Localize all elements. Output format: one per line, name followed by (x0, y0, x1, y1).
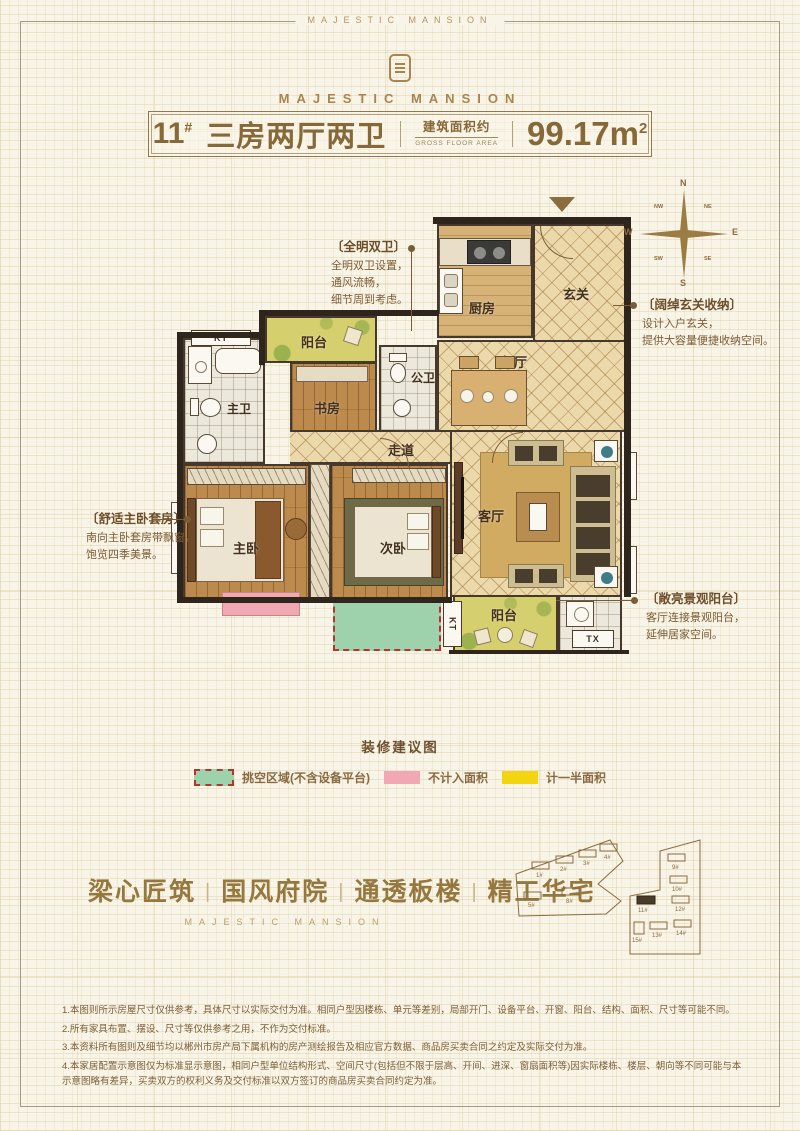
area-label-en: GROSS FLOOR AREA (415, 140, 498, 147)
washbasin-icon (197, 434, 217, 454)
compass-n: N (680, 178, 687, 188)
washing-machine-icon (566, 601, 594, 627)
sofa-main (570, 466, 616, 582)
site-label: 2# (560, 867, 567, 873)
annotation-view-balcony: 〔敞亮景观阳台〕 客厅连接景观阳台， 延伸居家空间。 (646, 588, 746, 644)
excluded-swatch (384, 771, 420, 784)
site-label: 9# (672, 865, 679, 871)
room-balcony-bottom-label: 阳台 (491, 605, 517, 624)
annotation-foyer-storage: 〔阔绰玄关收纳〕 设计入户玄关， 提供大容量便捷收纳空间。 (642, 294, 774, 350)
annotation-master-suite: 〔舒适主卧套房〕 南向主卧套房带飘窗， 饱览四季美景。 (86, 508, 196, 564)
slogan-item: 国风府院 (221, 878, 329, 906)
sink-basin-icon (444, 274, 458, 288)
balcony-table-icon (497, 627, 513, 643)
unit-number-sup: # (184, 119, 192, 135)
annotation-line: 全明双卫设置， (331, 258, 408, 275)
plant-icon (601, 446, 613, 458)
room-second-bedroom-label: 次卧 (380, 538, 406, 557)
room-living-label: 客厅 (478, 506, 504, 525)
leader-dot (184, 516, 191, 523)
unit-number: 11# (153, 117, 193, 151)
cushion-icon (576, 527, 610, 549)
sofa-bench (508, 564, 564, 588)
annotation-title: 〔敞亮景观阳台〕 (646, 588, 746, 607)
room-public-bath-label: 公卫 (411, 369, 435, 386)
void-swatch (194, 769, 234, 786)
wall-right (624, 217, 631, 597)
closet-strip (310, 464, 330, 600)
burner-icon (474, 247, 486, 259)
pillow-icon (200, 529, 224, 547)
leader-line (411, 251, 412, 331)
cushion-icon (539, 446, 557, 461)
room-master-bedroom: 主卧 (183, 464, 310, 600)
slogan-item: 梁心匠筑 (88, 878, 196, 906)
wall-top (433, 217, 629, 224)
slogan-divider: | (196, 881, 221, 903)
side-table (594, 440, 618, 462)
disclaimer-line: 1.本图则所示房屋尺寸仅供参考，具体尺寸以实际交付为准。相同户型因楼栋、单元等差… (62, 1004, 750, 1019)
tv-screen-icon (461, 477, 464, 539)
site-plan: 1# 2# 3# 4# 5# 8# 9# 10# 11# 12# 13# 14#… (510, 834, 710, 964)
plate-icon (504, 389, 518, 403)
title-divider (400, 121, 401, 147)
room-master-bedroom-label: 主卧 (233, 538, 259, 557)
leader-dot (631, 597, 638, 604)
side-table (594, 566, 618, 588)
room-living: 客厅 (450, 430, 622, 597)
site-label: 11# (638, 908, 648, 914)
legend-label: 不计入面积 (428, 769, 488, 786)
layout-name: 三房两厅两卫 (206, 113, 386, 155)
plant-icon (601, 572, 613, 584)
bed-headboard (432, 506, 441, 578)
site-label: 13# (652, 933, 663, 939)
bathtub-icon (215, 348, 261, 374)
room-foyer-label: 玄关 (563, 284, 589, 303)
annotation-line: 延伸居家空间。 (646, 627, 746, 644)
excluded-area-pink (222, 592, 300, 616)
plate-icon (482, 391, 494, 403)
tray-icon (529, 503, 547, 531)
slogan-divider: | (462, 881, 487, 903)
site-label: 3# (583, 861, 590, 867)
cushion-icon (539, 569, 557, 583)
tx-tag-label: TX (586, 634, 600, 644)
half-area-swatch (502, 771, 538, 784)
disclaimer-line: 4.本家居配置示意图仅为标准显示意图，相同户型单位结构形式、空间尺寸(包括但不限… (62, 1060, 750, 1089)
slogan: 梁心匠筑|国风府院|通透板楼|精工华宅 MAJESTIC MANSION (88, 872, 482, 927)
slogan-main: 梁心匠筑|国风府院|通透板楼|精工华宅 (88, 872, 482, 908)
annotation-double-bath: 〔全明双卫〕 全明双卫设置， 通风流畅， 细节周到考虑。 (331, 236, 408, 309)
cushion-icon (515, 569, 533, 583)
burner-icon (493, 247, 505, 259)
annotation-line: 饱览四季美景。 (86, 547, 196, 564)
compass-w: W (624, 227, 633, 237)
wardrobe (352, 468, 446, 483)
room-second-bedroom: 次卧 (330, 464, 448, 600)
leader-dot (630, 302, 637, 309)
kitchen-sink (439, 268, 463, 314)
annotation-line: 提供大容量便捷收纳空间。 (642, 333, 774, 350)
leader-line (556, 600, 634, 601)
disclaimer-line: 2.所有家具布置、摆设、尺寸等仅供参考之用，不作为交付标准。 (62, 1023, 750, 1038)
washbasin-icon (393, 399, 411, 417)
seal-icon (389, 54, 411, 82)
washing-machine-icon (188, 346, 212, 384)
toilet-icon (390, 363, 406, 383)
cushion-icon (576, 501, 610, 523)
wall-top-left (259, 310, 439, 316)
site-label: 10# (672, 887, 683, 893)
room-balcony-bottom: 阳台 (453, 595, 558, 653)
compass-se: SE (704, 256, 711, 262)
balcony-chair-icon (343, 326, 363, 346)
room-kitchen: 厨房 (437, 224, 533, 338)
site-label: 14# (676, 931, 687, 937)
legend-item-excluded: 不计入面积 (384, 769, 488, 786)
disclaimer-line: 3.本资料所有图则及细节均以郴州市房产局下属机构的房产测绘报告及相应官方数据、商… (62, 1041, 750, 1056)
site-label: 1# (536, 873, 543, 879)
toilet-icon (200, 398, 221, 417)
room-public-bath: 公卫 (379, 345, 437, 432)
legend-title: 装修建议图 (0, 736, 800, 756)
entry-arrow-icon (549, 197, 575, 212)
room-master-bath: 主卫 (183, 338, 265, 464)
area-value: 99.17m2 (527, 115, 647, 153)
dining-table (451, 370, 527, 426)
balcony-chair-icon (473, 627, 491, 645)
compass-nw: NW (654, 204, 663, 210)
rug-round (285, 518, 307, 540)
title-bar: 11# 三房两厅两卫 建筑面积约 GROSS FLOOR AREA 99.17m… (148, 111, 652, 157)
site-label: 15# (632, 938, 643, 944)
compass-sw: SW (654, 256, 663, 262)
brand-logo-text: MAJESTIC MANSION (0, 91, 800, 106)
void-area-green (333, 597, 441, 651)
wall-bottom-bedrooms (177, 597, 452, 603)
study-bench (296, 366, 368, 382)
annotation-line: 设计入户玄关， (642, 316, 774, 333)
compass-rose-icon (636, 186, 732, 282)
pillow-icon (407, 533, 429, 550)
slogan-item: 通透板楼 (354, 878, 462, 906)
compass-ne: NE (704, 204, 712, 210)
site-label: 8# (566, 899, 573, 905)
chair-icon (459, 356, 479, 369)
site-label: 5# (528, 903, 535, 909)
room-balcony-top: 阳台 (265, 316, 377, 363)
brand-logo: MAJESTIC MANSION (0, 54, 800, 106)
site-label: 4# (604, 855, 611, 861)
annotation-title: 〔舒适主卧套房〕 (86, 508, 196, 527)
toilet-tank-icon (190, 398, 199, 416)
sink-basin-icon (444, 293, 458, 307)
title-divider (512, 121, 513, 147)
kt-tag-side: KT (443, 601, 462, 647)
site-label: 12# (675, 907, 686, 913)
annotation-line: 细节周到考虑。 (331, 292, 408, 309)
chair-icon (495, 356, 515, 369)
compass-s: S (680, 278, 686, 288)
room-dining: 餐厅 (437, 340, 626, 432)
plate-icon (460, 389, 474, 403)
area-label-cn: 建筑面积约 (415, 121, 498, 138)
area-label: 建筑面积约 GROSS FLOOR AREA (415, 121, 498, 147)
compass: N S E W NW NE SW SE (636, 186, 732, 282)
frame-brand-text: MAJESTIC MANSION (295, 15, 504, 25)
room-study-label: 书房 (314, 398, 340, 417)
room-kitchen-label: 厨房 (469, 298, 495, 317)
compass-e: E (732, 227, 738, 237)
wall-bottom-balcony (449, 650, 629, 654)
toilet-tank-icon (389, 353, 407, 362)
coffee-table (516, 492, 560, 542)
room-master-bath-label: 主卫 (227, 400, 251, 417)
tv-cabinet (454, 462, 463, 554)
washer-door-icon (574, 607, 589, 622)
washer-door-icon (195, 361, 207, 373)
area-exponent: 2 (639, 120, 647, 137)
room-balcony-top-label: 阳台 (301, 332, 327, 351)
wall-bath-top (177, 332, 265, 338)
cushion-icon (576, 475, 610, 497)
annotation-line: 通风流畅， (331, 275, 408, 292)
annotation-title: 〔阔绰玄关收纳〕 (642, 294, 774, 313)
annotation-line: 客厅连接景观阳台， (646, 610, 746, 627)
legend-item-half: 计一半面积 (502, 769, 606, 786)
legend: 装修建议图 挑空区域(不含设备平台) 不计入面积 计一半面积 (0, 736, 800, 786)
slogan-sub: MAJESTIC MANSION (88, 917, 482, 927)
pillow-icon (407, 513, 429, 530)
disclaimer: 1.本图则所示房屋尺寸仅供参考，具体尺寸以实际交付为准。相同户型因楼栋、单元等差… (62, 1004, 750, 1094)
room-corridor: 走道 (290, 430, 452, 464)
legend-label: 挑空区域(不含设备平台) (242, 769, 370, 786)
stove-icon (467, 240, 511, 264)
legend-item-void: 挑空区域(不含设备平台) (194, 769, 370, 786)
site-building-11-highlight (637, 896, 655, 904)
kt-tag-side-label: KT (448, 617, 458, 631)
wardrobe (187, 468, 306, 485)
legend-label: 计一半面积 (546, 769, 606, 786)
annotation-line: 南向主卧套房带飘窗， (86, 530, 196, 547)
slogan-divider: | (329, 881, 354, 903)
tx-tag: TX (572, 630, 614, 648)
annotation-title: 〔全明双卫〕 (331, 236, 408, 255)
pillow-icon (200, 507, 224, 525)
balcony-chair-icon (519, 629, 538, 648)
